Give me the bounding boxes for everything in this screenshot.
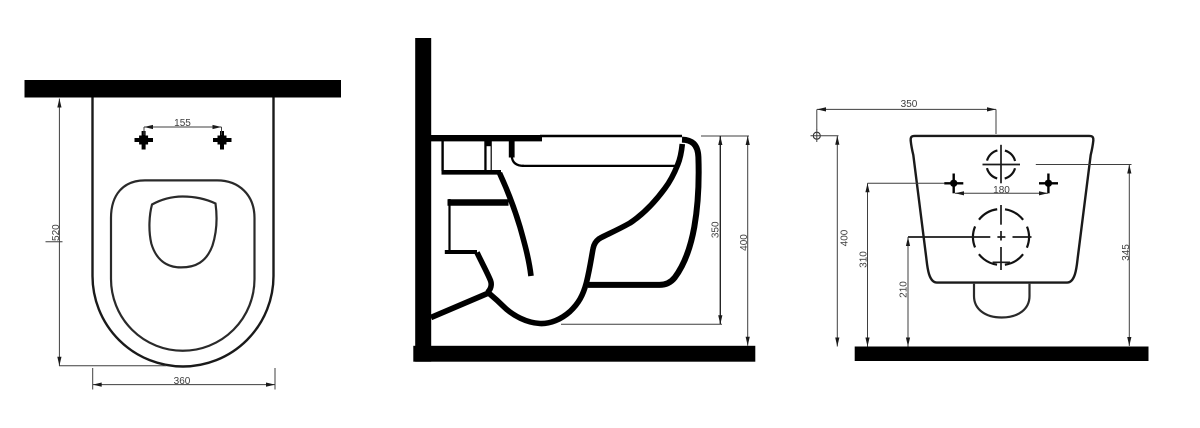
svg-text:400: 400 [840,229,851,246]
svg-text:155: 155 [174,118,191,129]
svg-text:400: 400 [739,234,750,251]
svg-text:350: 350 [901,99,918,110]
svg-text:310: 310 [858,251,869,268]
svg-text:360: 360 [174,376,191,387]
svg-text:350: 350 [711,221,722,238]
svg-text:520: 520 [51,224,62,241]
svg-text:180: 180 [993,185,1010,196]
svg-text:210: 210 [899,281,910,298]
svg-text:345: 345 [1121,244,1132,261]
